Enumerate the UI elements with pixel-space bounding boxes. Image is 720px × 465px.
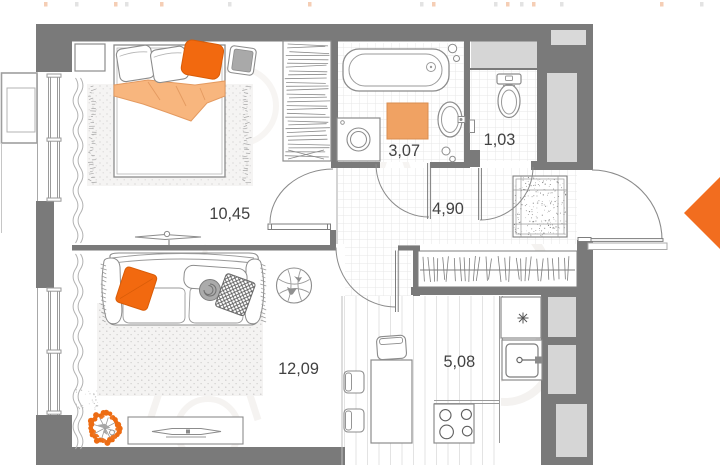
- svg-text:12,09: 12,09: [278, 360, 319, 378]
- svg-text:4,90: 4,90: [432, 200, 464, 218]
- svg-text:1,03: 1,03: [484, 131, 516, 149]
- svg-text:3,07: 3,07: [388, 142, 420, 160]
- svg-text:5,08: 5,08: [443, 353, 475, 371]
- svg-text:10,45: 10,45: [209, 205, 250, 223]
